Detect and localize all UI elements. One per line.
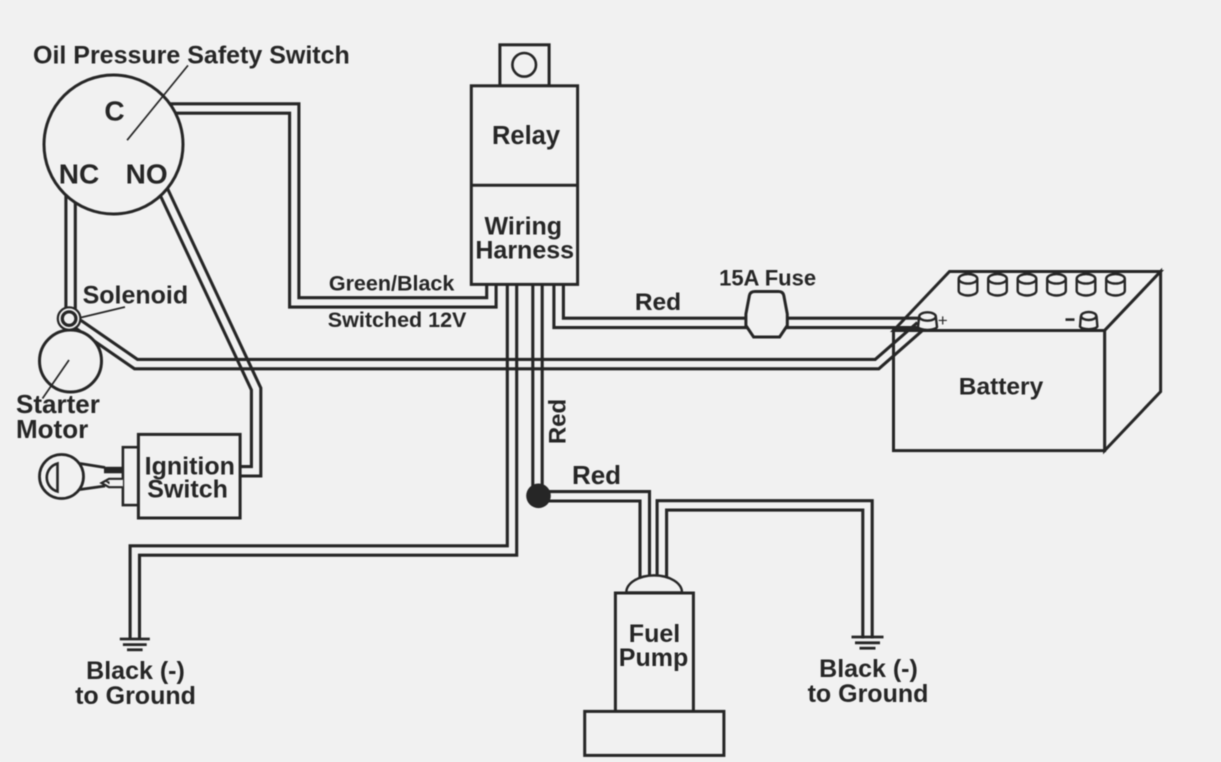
svg-text:Pump: Pump [619, 644, 688, 672]
svg-text:Harness: Harness [475, 237, 574, 265]
svg-text:Red: Red [635, 289, 681, 316]
svg-text:Red: Red [572, 460, 621, 490]
svg-text:Green/Black: Green/Black [329, 272, 455, 296]
svg-text:Switched 12V: Switched 12V [328, 308, 467, 332]
svg-text:Switch: Switch [147, 476, 228, 504]
svg-text:15A Fuse: 15A Fuse [719, 266, 816, 291]
svg-text:NC: NC [59, 159, 99, 190]
svg-text:Battery: Battery [959, 374, 1044, 401]
svg-text:Oil Pressure Safety Switch: Oil Pressure Safety Switch [33, 42, 350, 70]
svg-text:to Ground: to Ground [808, 680, 929, 708]
svg-text:Black (-): Black (-) [86, 657, 185, 685]
svg-text:to Ground: to Ground [75, 682, 196, 710]
svg-text:Relay: Relay [492, 122, 561, 150]
svg-text:Solenoid: Solenoid [83, 282, 189, 310]
svg-text:+: + [938, 311, 948, 330]
svg-text:C: C [104, 96, 124, 127]
svg-text:Red: Red [545, 399, 572, 444]
svg-text:NO: NO [126, 159, 168, 190]
svg-text:Black (-): Black (-) [819, 655, 918, 683]
svg-text:Motor: Motor [16, 414, 88, 444]
